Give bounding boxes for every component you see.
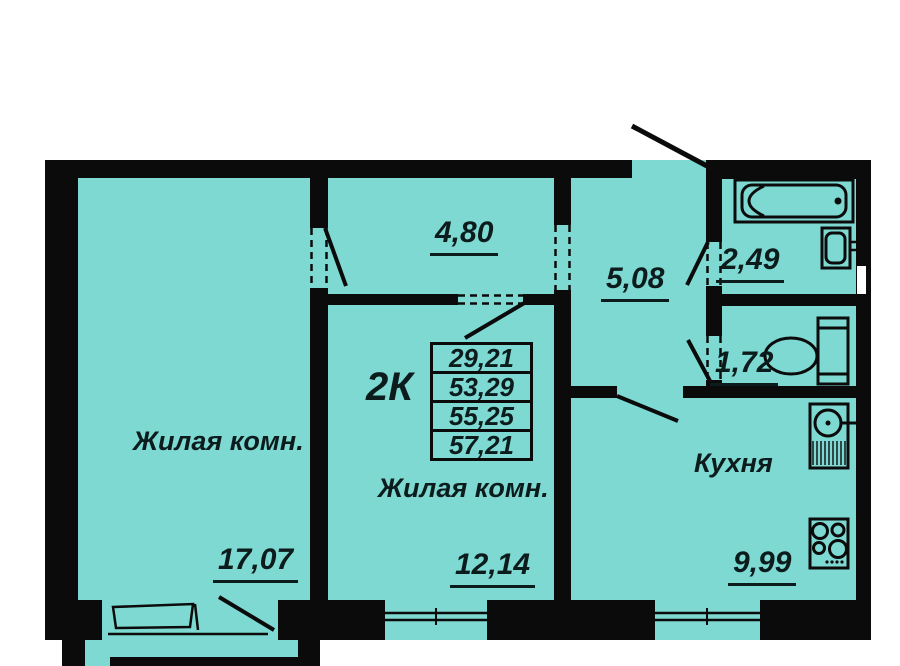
info-table-row: 57,21	[433, 429, 530, 458]
area-living2: 12,14	[450, 548, 535, 588]
area-bathroom: 2,49	[716, 243, 784, 283]
living1-door-leaf	[325, 228, 346, 286]
balcony-window	[108, 604, 268, 634]
window-living2	[385, 608, 487, 625]
bathtub-icon	[735, 180, 853, 222]
room-label-living1: Жилая комн.	[133, 426, 304, 457]
area-hallway: 5,08	[601, 262, 669, 302]
area-corridor: 4,80	[430, 216, 498, 256]
entrance-door-leaf	[632, 126, 707, 166]
kitchen-door-leaf	[617, 396, 678, 421]
info-table-row: 29,21	[433, 345, 530, 371]
stove-icon	[810, 519, 848, 568]
area-kitchen: 9,99	[728, 546, 796, 586]
info-table-row: 55,25	[433, 400, 530, 429]
room-label-living2: Жилая комн.	[378, 473, 549, 504]
window-kitchen	[655, 608, 760, 625]
bathroom-sink-icon	[822, 228, 858, 268]
info-table: 29,21 53,29 55,25 57,21	[430, 342, 533, 461]
balcony-door-leaf	[219, 597, 274, 630]
floor-plan: Жилая комн. 17,07 4,80 5,08 2,49 1,72 Жи…	[0, 0, 900, 666]
kitchen-sink-icon	[810, 404, 856, 468]
room-label-kitchen: Кухня	[694, 448, 773, 479]
area-wc: 1,72	[710, 346, 778, 386]
apartment-type-label: 2К	[366, 365, 413, 410]
info-table-row: 53,29	[433, 371, 530, 400]
living2-door-leaf	[465, 302, 526, 338]
bathroom-door-leaf	[687, 242, 708, 285]
area-living1: 17,07	[213, 543, 298, 583]
